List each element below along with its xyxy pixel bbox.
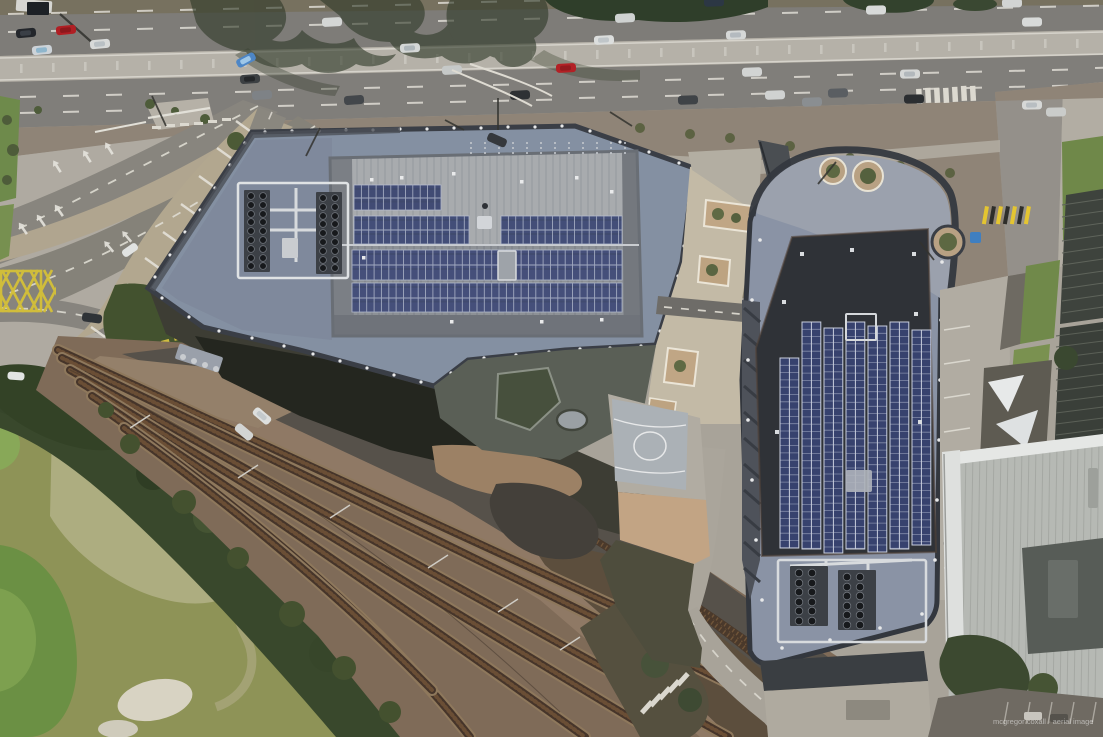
svg-text:mcgregor coxall · aerial image: mcgregor coxall · aerial image xyxy=(993,717,1093,726)
